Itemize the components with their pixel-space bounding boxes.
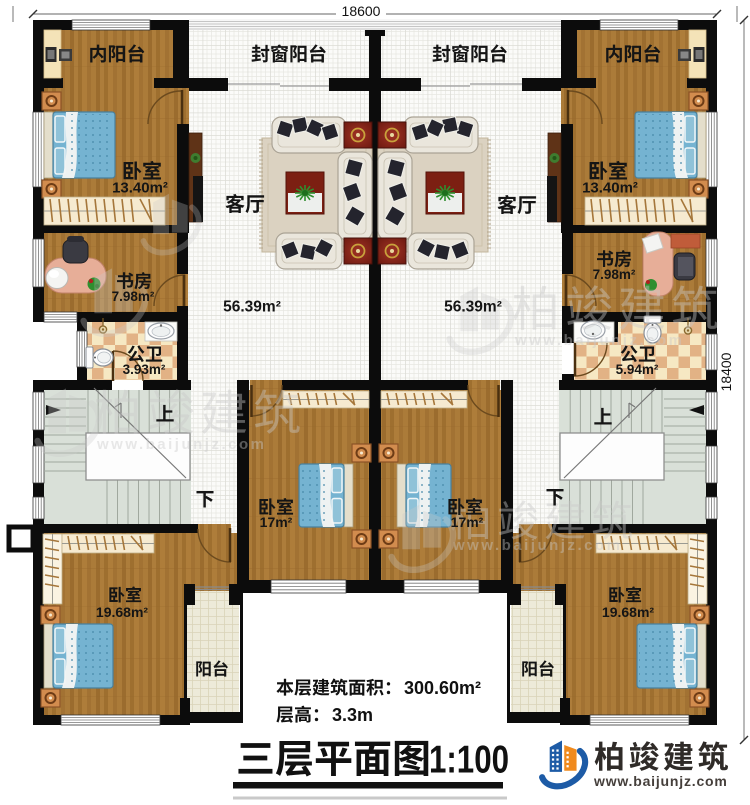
svg-text:www.baijunjz.com: www.baijunjz.com: [96, 436, 266, 453]
svg-text:3.93m²: 3.93m²: [123, 362, 166, 377]
svg-text:56.39m²: 56.39m²: [444, 299, 502, 316]
svg-text:3.3m: 3.3m: [332, 705, 373, 725]
svg-text:300.60m²: 300.60m²: [404, 678, 481, 698]
svg-text:56.39m²: 56.39m²: [223, 299, 281, 316]
svg-text:17m²: 17m²: [451, 514, 484, 530]
svg-text:17m²: 17m²: [260, 514, 293, 530]
svg-text:13.40m²: 13.40m²: [582, 179, 638, 196]
svg-text:13.40m²: 13.40m²: [112, 179, 168, 196]
svg-text:7.98m²: 7.98m²: [112, 289, 155, 304]
svg-text:1:100: 1:100: [429, 739, 509, 782]
svg-text:5.94m²: 5.94m²: [616, 362, 659, 377]
svg-text:18400: 18400: [718, 352, 734, 391]
svg-text:18600: 18600: [342, 3, 381, 19]
svg-text:19.68m²: 19.68m²: [96, 604, 148, 620]
svg-text:7.98m²: 7.98m²: [593, 267, 636, 282]
svg-text:www.baijunjz.com: www.baijunjz.com: [452, 537, 622, 554]
svg-text:www.baijunjz.com: www.baijunjz.com: [593, 773, 728, 789]
svg-text:www.baijunjz.com: www.baijunjz.com: [514, 332, 684, 349]
svg-text:19.68m²: 19.68m²: [602, 604, 654, 620]
